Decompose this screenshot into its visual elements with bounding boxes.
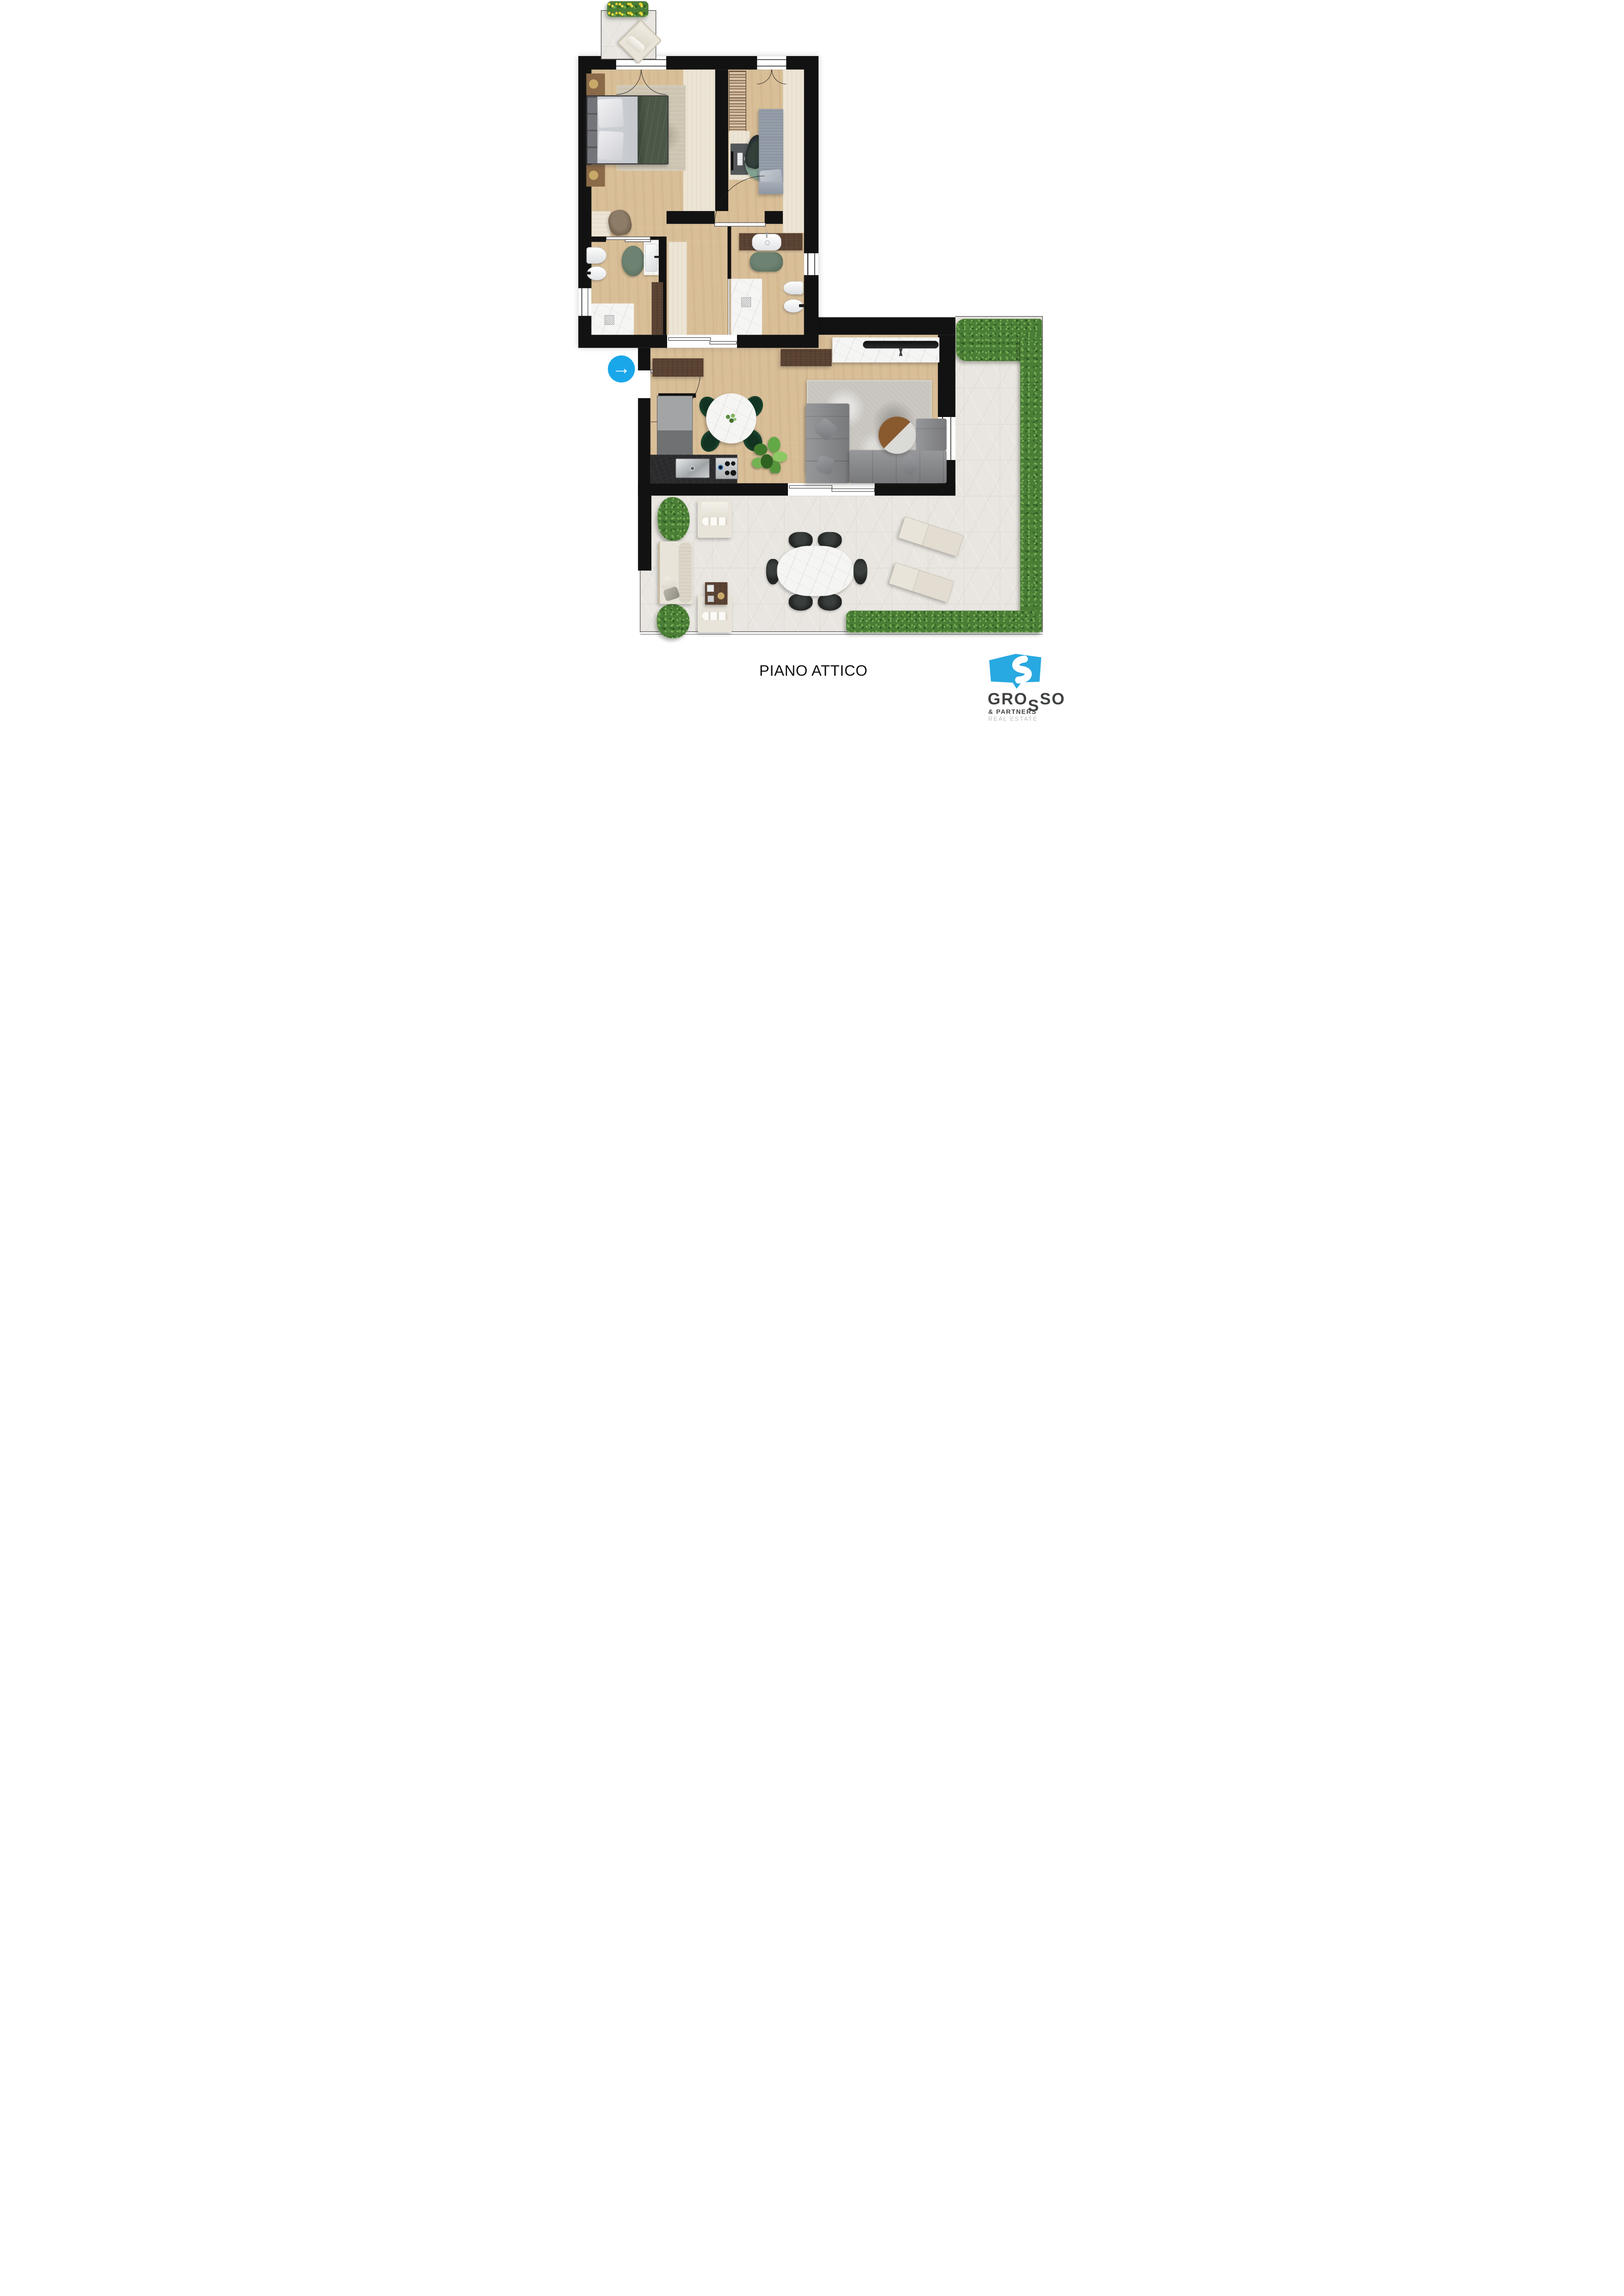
bath1-sliding-door-panel	[625, 239, 651, 242]
terrace-chair	[818, 594, 842, 610]
outdoor-coffee-table	[705, 582, 728, 605]
monstera-plant	[751, 437, 788, 473]
entry-console	[653, 358, 704, 377]
tv-stand	[892, 348, 910, 356]
bed-duvet	[637, 96, 668, 164]
tv-screen	[863, 341, 939, 348]
sink-faucet	[654, 256, 659, 258]
toilet	[783, 281, 803, 295]
logo-subtitle: & PARTNERS	[988, 708, 1037, 716]
hob-burner	[718, 465, 724, 471]
keyboard	[737, 153, 743, 165]
logo-wordmark: GROSSO	[988, 689, 1066, 708]
sink-faucet	[766, 232, 768, 238]
armchair-pillow	[702, 612, 728, 620]
terrace-edge-top	[956, 316, 1043, 317]
tray-square	[707, 585, 714, 592]
hedge-right	[1020, 334, 1042, 627]
bidet	[784, 299, 804, 313]
shower-tray	[731, 279, 762, 335]
corridor-closet	[668, 242, 687, 335]
bath1-cabinet	[652, 282, 663, 335]
kitchen-tall-units	[657, 396, 693, 456]
bath2-window	[804, 253, 818, 275]
bidet	[587, 267, 606, 280]
logo-name-prefix: GRO	[988, 690, 1028, 708]
wall-living-bottom	[638, 483, 788, 496]
toilet	[587, 247, 606, 264]
shower-drain	[741, 298, 751, 307]
logo-name-suffix: SO	[1040, 690, 1065, 708]
closet-bedroom1	[592, 212, 610, 236]
bath1-window	[578, 288, 591, 316]
wardrobe-bedroom2	[783, 69, 804, 233]
wardrobe-bedroom1	[683, 69, 715, 211]
hob-burner	[731, 461, 735, 466]
hob-burner	[731, 470, 737, 476]
terrace-dining-table	[777, 546, 853, 596]
wall-parapet-left	[638, 496, 651, 571]
entrance-arrow-icon: →	[608, 355, 635, 382]
nightstand-tray	[589, 79, 598, 88]
wall-living-top	[804, 317, 956, 335]
shower-drain	[605, 315, 614, 325]
bed-double	[586, 95, 668, 164]
bed-pillow	[598, 131, 624, 161]
page-title: PIANO ATTICO	[736, 662, 892, 679]
media-shelf	[781, 349, 831, 366]
logo-mark	[987, 653, 1043, 689]
sink-drain	[690, 466, 695, 471]
armchair-pillow	[702, 517, 728, 525]
nightstand	[586, 165, 605, 187]
bath-rug	[622, 246, 645, 276]
wall-bedroom-divider	[715, 69, 728, 211]
terrace-bush	[658, 497, 690, 541]
nightstand-tray	[589, 171, 598, 180]
terrace-edge-right	[1042, 316, 1043, 632]
table-plant	[724, 412, 738, 424]
pocket-door-panel	[710, 341, 737, 344]
wall-living-left	[638, 398, 650, 496]
floorplan-canvas: → PIANO ATTICO GROSSO & PARTNERS REAL ES…	[556, 0, 1067, 722]
entrance-arrow-glyph: →	[612, 359, 631, 377]
terrace-chair	[789, 594, 813, 610]
terrace-chair	[854, 559, 868, 585]
bed-pillow	[598, 98, 624, 128]
tray-square	[707, 596, 714, 602]
bidet-faucet	[586, 272, 591, 274]
outdoor-armchair	[698, 500, 732, 538]
bookshelf	[729, 71, 746, 133]
wall-bath2-left	[728, 224, 731, 279]
sofa-bottom-module	[849, 450, 947, 483]
shower-tray	[591, 304, 634, 335]
pocket-door-panel	[668, 337, 711, 341]
sliding-door-panel	[831, 488, 874, 492]
sink-drain	[765, 241, 770, 245]
kitchen-sink	[675, 459, 710, 478]
terrace-edge-bottom-2	[640, 634, 1043, 635]
hob-burner	[725, 461, 730, 467]
sliding-door-panel	[789, 485, 832, 489]
wall-bath1-top	[591, 236, 606, 242]
wall-living-right	[938, 335, 956, 417]
coffee-table	[879, 417, 916, 454]
bedroom2-window	[757, 56, 786, 69]
entry-door-opening	[638, 370, 650, 398]
shower-glass	[728, 279, 730, 335]
bath2-sink	[752, 234, 781, 250]
nightstand	[586, 74, 605, 95]
hob-burner	[725, 471, 730, 475]
tray-round	[718, 592, 725, 599]
floorplan-page: → PIANO ATTICO GROSSO & PARTNERS REAL ES…	[556, 0, 1068, 722]
bath-rug	[750, 252, 783, 272]
kitchen-hob	[715, 458, 737, 479]
bed-headboard	[587, 97, 597, 163]
wall-corridor-top	[667, 211, 715, 224]
brand-logo: GROSSO & PARTNERS REAL ESTATE	[986, 652, 1068, 720]
bath1-sink-counter	[644, 240, 659, 275]
terrace-bush	[657, 604, 690, 638]
sofa-chaise-module	[916, 419, 947, 451]
logo-tagline: REAL ESTATE	[988, 716, 1038, 722]
outdoor-sofa-backrest	[679, 542, 692, 603]
balcony-planter	[607, 1, 648, 17]
monitor	[731, 151, 733, 170]
bidet-faucet	[799, 304, 804, 307]
wall-living-left	[638, 348, 650, 371]
hedge-bottom	[846, 610, 1042, 632]
outdoor-sofa	[658, 541, 693, 604]
